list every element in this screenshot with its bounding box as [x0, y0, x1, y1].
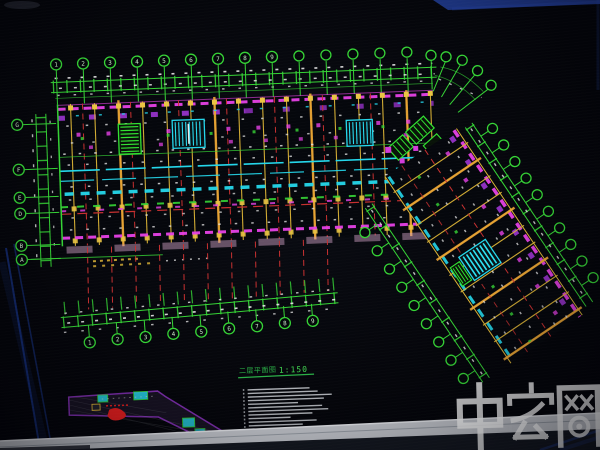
- grid-bubble: G: [11, 119, 22, 130]
- svg-text:2: 2: [81, 61, 85, 68]
- bend-fan-dimensions: [432, 50, 497, 113]
- note-line: [248, 394, 332, 397]
- note-line: [248, 398, 324, 401]
- grid-bubble: 8: [279, 317, 291, 329]
- note-line: [248, 403, 298, 405]
- grid-bubble: B: [16, 240, 27, 251]
- svg-text:F: F: [17, 167, 21, 174]
- grid-bubble: D: [15, 208, 26, 219]
- grid-bubble: 2: [77, 58, 88, 69]
- grid-bubble: A: [16, 254, 27, 265]
- note-line: [248, 405, 322, 408]
- svg-text:E: E: [18, 195, 22, 202]
- svg-text:3: 3: [108, 60, 112, 67]
- svg-text:1: 1: [54, 62, 58, 69]
- grid-bubble: 7: [251, 320, 263, 332]
- svg-text:6: 6: [189, 57, 193, 64]
- svg-text:7: 7: [216, 56, 220, 63]
- note-line: [248, 409, 328, 412]
- grid-bubble: 7: [212, 53, 223, 64]
- floor-plan-drawing: 1 2 3 4 5 6 7 8 9: [9, 40, 600, 450]
- grid-bubble: 1: [84, 336, 96, 348]
- note-line: [249, 420, 317, 422]
- grid-bubble: 6: [185, 54, 196, 65]
- cad-screen: 1 2 3 4 5 6 7 8 9: [0, 0, 600, 450]
- monitor-photo: 1 2 3 4 5 6 7 8 9: [0, 0, 600, 450]
- grid-bubble: 9: [266, 51, 277, 62]
- stair-block-cyan-2: [346, 119, 373, 146]
- svg-text:4: 4: [135, 59, 139, 66]
- grid-bubble: 5: [195, 326, 207, 338]
- note-line: [248, 413, 312, 415]
- svg-text:5: 5: [162, 58, 166, 65]
- grid-bubble: 6: [223, 323, 235, 335]
- svg-text:8: 8: [243, 55, 247, 62]
- grid-bubble: F: [13, 164, 24, 175]
- note-line: [249, 424, 303, 426]
- note-numbers: [244, 389, 245, 431]
- note-line: [248, 388, 310, 390]
- grid-bubble: 9: [307, 315, 319, 327]
- plan-scale: 1:150: [279, 365, 308, 375]
- screen-reflection-left: [2, 244, 52, 449]
- grid-bubble: 4: [167, 328, 179, 340]
- svg-text:G: G: [15, 122, 19, 129]
- notes-block: [244, 386, 333, 431]
- grid-bubbles-bottom: 1 2 3 4 5 6 7 8 9: [83, 303, 319, 348]
- grid-bubble: 4: [131, 56, 142, 67]
- svg-text:A: A: [20, 257, 24, 264]
- stair-block-cyan-1: [172, 119, 205, 148]
- grid-bubble: 2: [112, 333, 124, 345]
- screen-glare: [4, 1, 40, 9]
- title-block: 二层平面图 1:150: [238, 365, 314, 378]
- bottom-dimension-band: 1 2 3 4 5 6 7 8 9: [60, 284, 341, 350]
- grid-bubble: 8: [239, 52, 250, 63]
- grid-bubble: 5: [158, 55, 169, 66]
- svg-text:D: D: [18, 211, 22, 218]
- plan-title: 二层平面图: [239, 366, 277, 375]
- svg-text:9: 9: [270, 54, 274, 61]
- grid-bubble: 1: [50, 59, 61, 70]
- grid-bubble: E: [14, 192, 25, 203]
- note-line: [249, 417, 291, 418]
- grid-bubble: 3: [140, 331, 152, 343]
- stair-block-green: [118, 124, 141, 155]
- svg-text:B: B: [19, 243, 23, 250]
- note-line: [248, 391, 318, 393]
- grid-bubble: 3: [104, 57, 115, 68]
